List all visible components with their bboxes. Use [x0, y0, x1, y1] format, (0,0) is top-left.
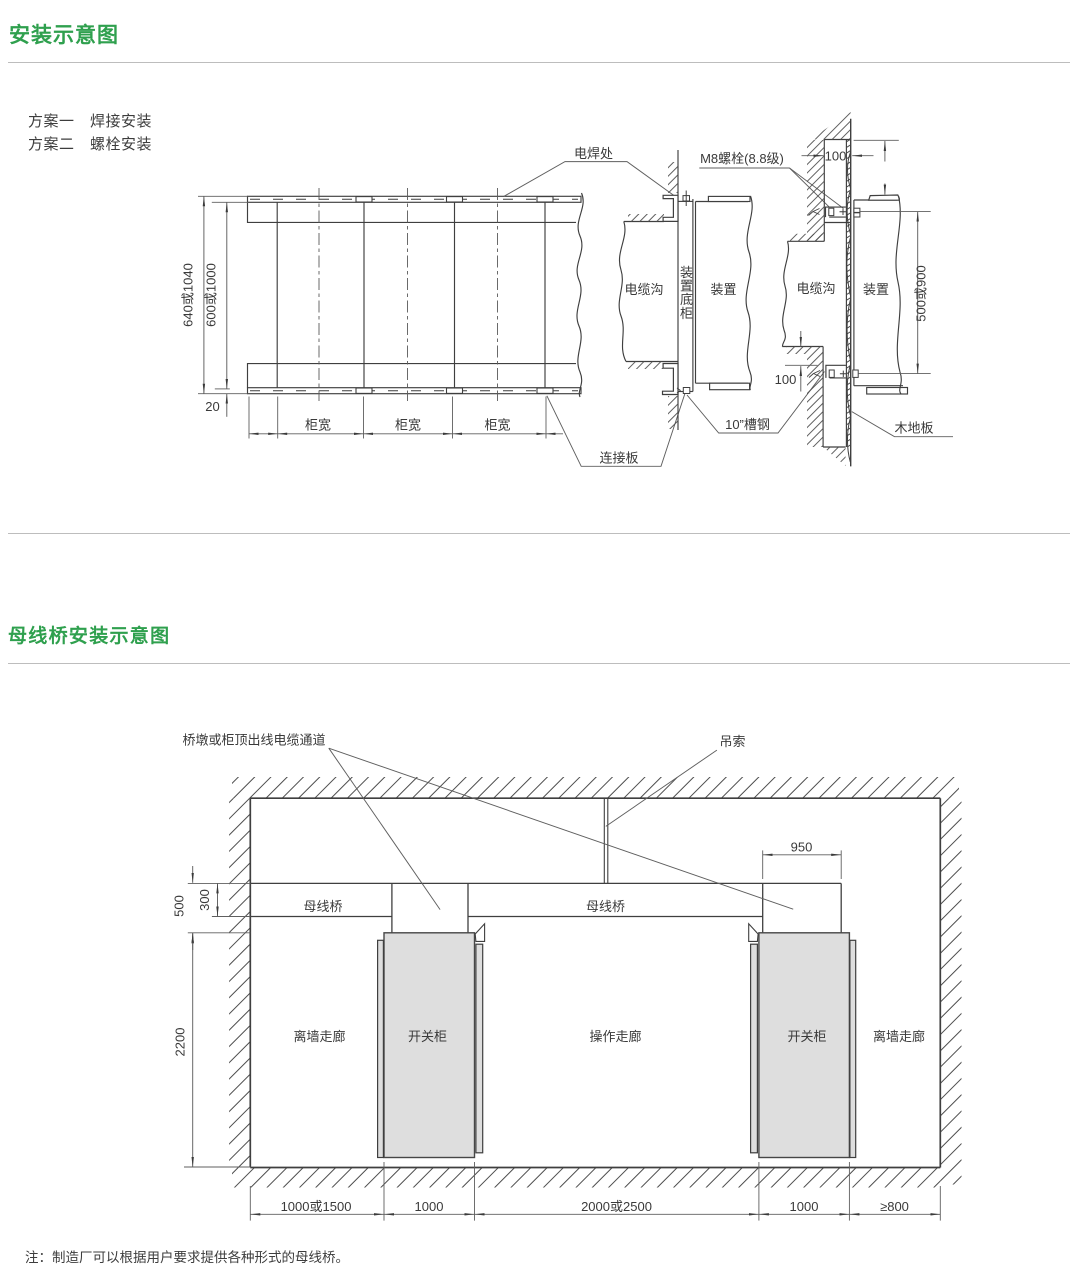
- svg-text:2200: 2200: [173, 1028, 188, 1057]
- svg-text:1000或1500: 1000或1500: [281, 1199, 352, 1214]
- svg-text:装置底柜: 装置底柜: [680, 265, 693, 321]
- svg-text:柜宽: 柜宽: [395, 418, 421, 433]
- svg-text:500或900: 500或900: [914, 265, 929, 321]
- svg-text:10”槽钢: 10”槽钢: [725, 417, 770, 432]
- svg-text:开关柜: 开关柜: [787, 1029, 826, 1044]
- svg-text:640或1040: 640或1040: [181, 263, 196, 327]
- svg-text:电缆沟: 电缆沟: [624, 282, 663, 297]
- svg-text:电缆沟: 电缆沟: [796, 281, 835, 296]
- svg-text:连接板: 连接板: [599, 451, 638, 466]
- svg-text:1000: 1000: [790, 1199, 819, 1214]
- svg-text:母线桥: 母线桥: [303, 899, 342, 914]
- svg-text:柜宽: 柜宽: [484, 418, 510, 433]
- svg-text:1000: 1000: [415, 1199, 444, 1214]
- svg-text:柜宽: 柜宽: [305, 418, 331, 433]
- svg-text:桥墩或柜顶出线电缆通道: 桥墩或柜顶出线电缆通道: [182, 733, 325, 748]
- svg-text:M8螺栓(8.8级): M8螺栓(8.8级): [700, 151, 784, 166]
- svg-text:装置: 装置: [863, 282, 889, 297]
- svg-text:母线桥: 母线桥: [586, 899, 625, 914]
- svg-text:装置: 装置: [710, 282, 736, 297]
- svg-text:100: 100: [825, 149, 847, 164]
- svg-text:离墙走廊: 离墙走廊: [873, 1029, 925, 1044]
- svg-text:≥800: ≥800: [880, 1199, 909, 1214]
- svg-text:电焊处: 电焊处: [574, 146, 613, 161]
- svg-text:开关柜: 开关柜: [408, 1029, 447, 1044]
- svg-text:离墙走廊: 离墙走廊: [293, 1029, 345, 1044]
- svg-text:木地板: 木地板: [894, 421, 933, 436]
- svg-text:500: 500: [172, 895, 187, 917]
- svg-text:600或1000: 600或1000: [204, 263, 219, 327]
- svg-text:操作走廊: 操作走廊: [589, 1029, 641, 1044]
- svg-text:吊索: 吊索: [719, 734, 745, 749]
- svg-text:2000或2500: 2000或2500: [581, 1199, 652, 1214]
- svg-text:300: 300: [197, 889, 212, 911]
- svg-text:100: 100: [775, 372, 797, 387]
- svg-text:950: 950: [791, 840, 813, 855]
- svg-text:20: 20: [205, 399, 219, 414]
